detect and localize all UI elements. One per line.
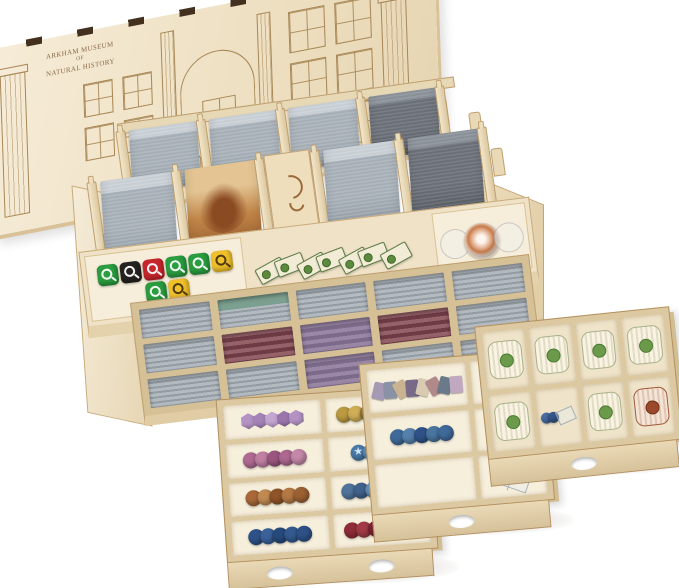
card-slot-cell-grey — [143, 336, 217, 373]
die-piece — [142, 258, 165, 281]
card-slot-cell-green — [217, 292, 291, 329]
card-slot-cell-grey — [226, 361, 300, 398]
mini-card-slot-green — [621, 314, 669, 376]
engraved-column-left — [0, 71, 30, 218]
die-piece — [96, 263, 119, 286]
die-piece — [210, 249, 233, 272]
mini-card-tray-right — [474, 306, 679, 487]
card-slot-cell-purple — [300, 317, 374, 354]
compartment-blue-tokens — [370, 410, 472, 461]
hex-piece — [288, 409, 305, 426]
product-photo-scene: ARKHAM MUSEUM OF NATURAL HISTORY — [0, 0, 679, 588]
compartment-rose-tokens — [226, 438, 325, 478]
die-piece — [119, 261, 142, 284]
mini-card-stack — [626, 324, 663, 365]
finger-cutout — [570, 455, 597, 471]
mini-card-stack — [580, 329, 617, 370]
card-seal-icon — [545, 348, 560, 363]
card-slot-cell-grey — [139, 301, 213, 338]
mini-card-stack — [487, 339, 524, 380]
standee-piece — [448, 375, 462, 393]
acrylic-stand — [555, 406, 577, 426]
card-seal-icon — [638, 338, 653, 353]
finger-cutout — [448, 513, 475, 528]
lid-engraving-title: ARKHAM MUSEUM OF NATURAL HISTORY — [31, 37, 130, 83]
card-seal-icon — [645, 400, 660, 415]
compartment-standees — [366, 362, 468, 413]
card-slot-cell-maroon — [221, 326, 295, 363]
finger-cutout — [368, 558, 395, 573]
compartment-copper-tokens — [228, 477, 327, 517]
mini-card-stack — [586, 391, 623, 432]
mini-card-slot-green — [488, 391, 536, 453]
oct-piece — [296, 525, 313, 542]
mini-card-slot-green — [528, 324, 576, 386]
card-seal-icon — [499, 353, 514, 368]
die-piece — [165, 255, 188, 278]
card-slot-cell-grey — [373, 272, 447, 309]
tray-top — [474, 306, 679, 460]
card-slot-cell-grey — [295, 282, 369, 319]
mini-card-slot-green — [482, 329, 530, 391]
compartment-empty — [374, 457, 476, 508]
mini-card-slot-green — [575, 319, 623, 381]
mini-card-slot-mixed — [535, 386, 583, 448]
window-icon — [334, 0, 372, 44]
window-icon — [288, 5, 326, 53]
compartment-lavender-hex-tokens — [223, 399, 322, 439]
card-slot-cell-grey — [147, 371, 221, 408]
mini-card-stack — [493, 401, 530, 442]
compartment-navy-octopus-tokens — [231, 515, 330, 555]
mini-card-stack — [533, 334, 570, 375]
die-piece — [188, 252, 211, 275]
finger-cutout — [266, 565, 293, 580]
card-seal-icon — [592, 343, 607, 358]
card-seal-icon — [599, 405, 614, 420]
mini-card-slot-red — [628, 376, 676, 438]
card-slot-cell-grey — [452, 263, 526, 300]
card-slot-cell-maroon — [378, 307, 452, 344]
mini-card-slot-green — [581, 381, 629, 443]
pat-piece — [290, 448, 307, 465]
mini-card-stack — [633, 386, 670, 427]
pat-piece — [293, 487, 310, 504]
card-seal-icon — [506, 415, 521, 430]
